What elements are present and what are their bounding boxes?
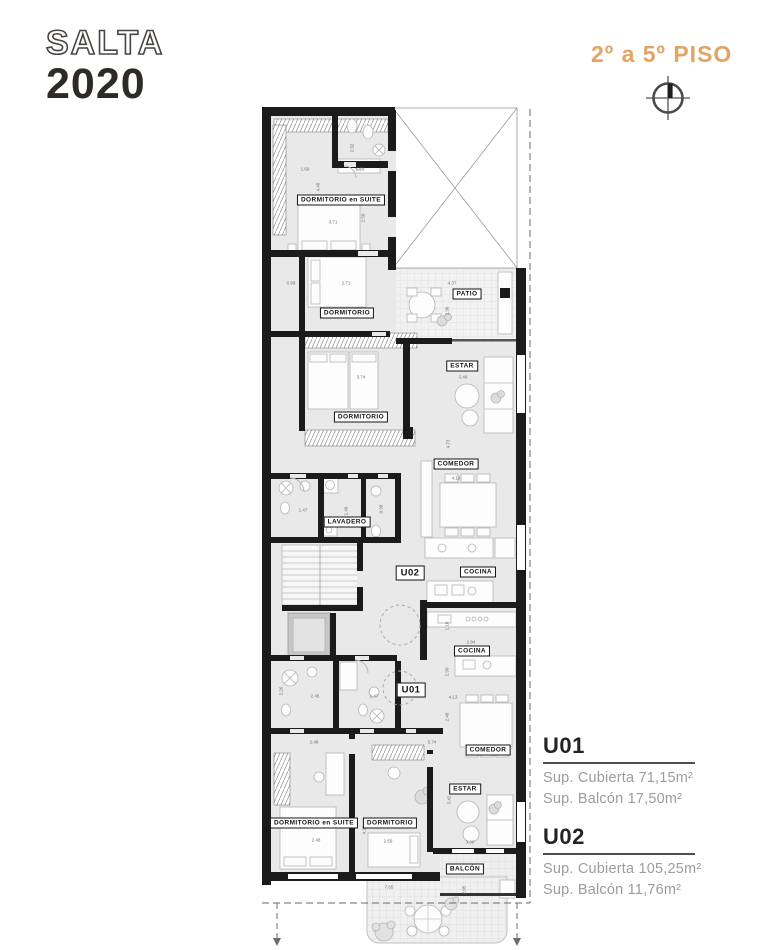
dimension-label: 2.26 (279, 687, 284, 696)
bed (308, 257, 366, 307)
unit-info-u02: U02 Sup. Cubierta 105,25m² Sup. Balcón 1… (543, 824, 713, 900)
dimension-label: 3.71 (329, 220, 338, 225)
dimension-label: 4.48 (316, 183, 321, 192)
compass-icon (644, 74, 692, 122)
unit-legend: U01 Sup. Cubierta 71,15m² Sup. Balcón 17… (543, 733, 713, 915)
dimension-label: 2.05 (462, 886, 467, 895)
dimension-label: 2.50 (361, 214, 366, 223)
bed (288, 205, 370, 253)
dimension-label: 3.74 (357, 375, 366, 380)
room-label-cocina-u01: COCINA (454, 646, 490, 657)
room-label-balcon: BALCÓN (446, 864, 484, 875)
unit-label-u01: U01 (397, 683, 426, 698)
bed (308, 352, 378, 409)
unit-label-u02: U02 (396, 566, 425, 581)
room-label-patio: PATIO (453, 289, 482, 300)
room-label-cocina-u02: COCINA (460, 567, 496, 578)
dimension-label: 1.47 (299, 508, 308, 513)
elevator (288, 613, 330, 657)
room-label-estar-u01: ESTAR (449, 784, 481, 795)
dimension-label: 4.73 (446, 440, 451, 449)
dimension-label: 3.06 (466, 840, 475, 845)
dimension-label: 2.30 (445, 307, 450, 316)
page: SALTA 2020 2º a 5º PISO (0, 0, 766, 950)
dimension-label: 3.48 (459, 375, 468, 380)
dimension-label: 2.90 (445, 668, 450, 677)
dimension-label: 1.10 (445, 622, 450, 631)
floor-range-label: 2º a 5º PISO (591, 41, 732, 68)
dimension-label: 1.40 (344, 507, 349, 516)
dimension-label: 2.48 (310, 740, 319, 745)
dimension-label: 4.19 (452, 476, 461, 481)
dimension-label: 1.69 (301, 167, 310, 172)
dimension-label: 0.99 (287, 281, 296, 286)
dimension-label: 2.48 (445, 713, 450, 722)
room-label-lavadero: LAVADERO (324, 517, 371, 528)
dimension-label: 4.13 (449, 695, 458, 700)
stairs (282, 545, 358, 605)
dining-table (440, 474, 496, 536)
room-label-comedor-u01: COMEDOR (466, 745, 511, 756)
dimension-label: 2.02 (350, 144, 355, 153)
dimension-label: 2.59 (384, 839, 393, 844)
dimension-label: 1.47 (370, 694, 379, 699)
dimension-label: 0.98 (379, 505, 384, 514)
brand-logo: SALTA 2020 (46, 26, 164, 106)
room-label-comedor-u02: COMEDOR (434, 459, 479, 470)
dimension-label: 2.71 (342, 281, 351, 286)
room-label-dormitorio-3: DORMITORIO (334, 412, 388, 423)
dimension-label: 4.37 (448, 281, 457, 286)
room-label-dormitorio-4: DORMITORIO (363, 818, 417, 829)
dimension-label: 2.45 (311, 694, 320, 699)
unit-balcony-area-u02: Sup. Balcón 11,76m² (543, 880, 713, 901)
unit-id-u02: U02 (543, 824, 695, 855)
room-label-dormitorio-suite-1: DORMITORIO en SUITE (297, 195, 385, 206)
room-label-dormitorio-2: DORMITORIO (320, 308, 374, 319)
unit-covered-area-u02: Sup. Cubierta 105,25m² (543, 859, 713, 880)
dimension-label: 2.94 (467, 640, 476, 645)
dimension-label: 3.42 (447, 796, 452, 805)
unit-info-u01: U01 Sup. Cubierta 71,15m² Sup. Balcón 17… (543, 733, 713, 809)
dimension-label: 7.65 (385, 885, 394, 890)
unit-balcony-area-u01: Sup. Balcón 17,50m² (543, 789, 713, 810)
void-lightwell (393, 108, 517, 268)
unit-covered-area-u01: Sup. Cubierta 71,15m² (543, 768, 713, 789)
room-label-dormitorio-suite-2: DORMITORIO en SUITE (270, 818, 358, 829)
dimension-label: 2.48 (312, 838, 321, 843)
dimension-label: 5.74 (428, 740, 437, 745)
brand-line1: SALTA (46, 26, 164, 60)
dimension-label: 1.59 (356, 167, 365, 172)
unit-id-u01: U01 (543, 733, 695, 764)
room-label-estar-u02: ESTAR (446, 361, 478, 372)
brand-line2: 2020 (46, 63, 164, 106)
